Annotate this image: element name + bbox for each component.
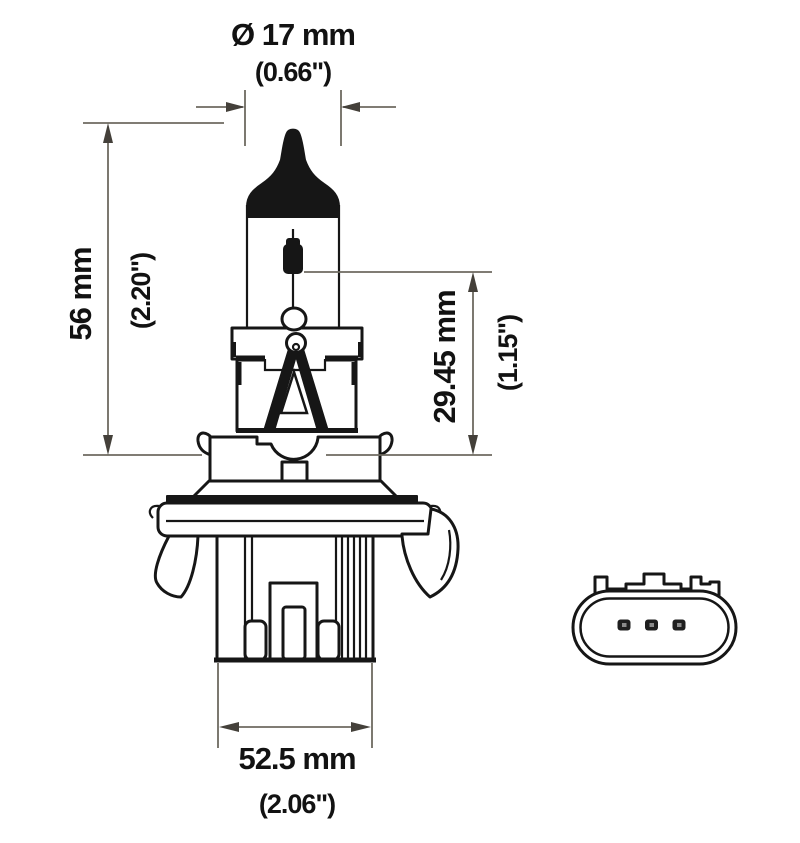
glass-bead [282,308,306,330]
arrowhead [219,722,239,732]
arrowhead [103,435,113,455]
socket-pocket-right [318,621,339,660]
dim-base-width: 52.5 mm (2.06") [218,663,372,819]
black-painted-tip [247,130,339,217]
diameter-metric-label: Ø 17 mm [231,17,355,52]
socket-center-slot [283,607,305,659]
wing-left [155,536,198,597]
connector-face-view [573,574,736,664]
connector-pin-center [650,623,655,627]
flange-key-tab [282,462,307,481]
clip-pivot-hole [293,344,299,350]
arrowhead [351,722,371,732]
length-imperial-label: (2.20") [126,253,156,329]
arrowhead [468,272,478,292]
connector-pin-center [622,623,627,627]
arrowhead [103,123,113,143]
dim-diameter: Ø 17 mm (0.66") [196,17,396,146]
dim-overall-length: 56 mm (2.20") [63,123,224,455]
filament-imperial-label: (1.15") [493,315,523,391]
flange-skirt [193,481,397,497]
arrowhead [341,102,360,112]
filament-body [284,245,302,273]
filament-metric-label: 29.45 mm [427,290,462,423]
width-metric-label: 52.5 mm [238,741,355,776]
width-imperial-label: (2.06") [259,789,335,819]
bulb-dimension-diagram: Ø 17 mm (0.66") 56 mm (2.20") [0,0,800,843]
diameter-imperial-label: (0.66") [255,57,331,87]
length-metric-label: 56 mm [63,247,98,340]
socket-pocket-left [245,621,266,660]
diagram-canvas: Ø 17 mm (0.66") 56 mm (2.20") [0,0,800,843]
arrowhead [468,435,478,455]
collar-plate [158,503,432,536]
arrowhead [226,102,245,112]
connector-pin-center [677,623,682,627]
